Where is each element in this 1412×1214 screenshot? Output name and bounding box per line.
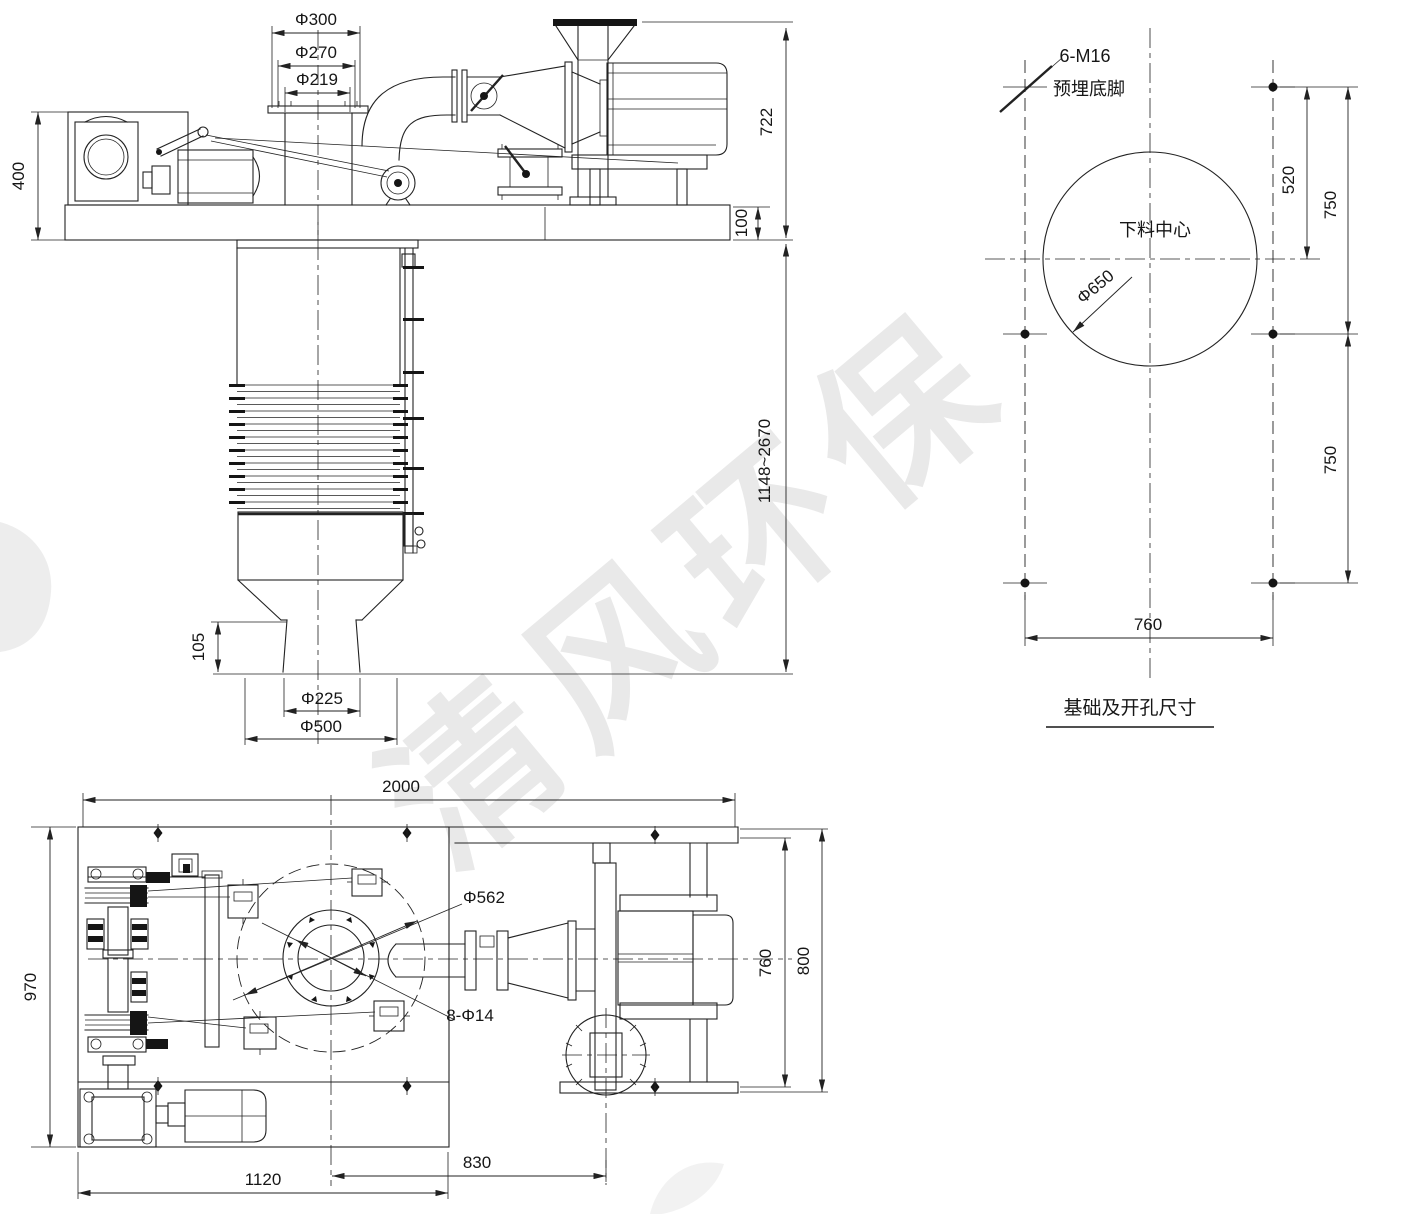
dim-bolt-span: 760 <box>1134 615 1162 634</box>
dim-overall-width: 2000 <box>382 777 420 796</box>
dim-center-offset: 520 <box>1279 166 1298 194</box>
label-discharge-center: 下料中心 <box>1119 220 1191 240</box>
dim-inlet-od: Φ300 <box>295 10 337 29</box>
foundation-view: 6-M16 预埋底脚 下料中心 Φ650 520 750 750 760 基础及… <box>985 28 1358 727</box>
dim-body-height-range: 1148~2670 <box>755 419 774 503</box>
dim-fan-height: 722 <box>757 108 776 136</box>
dim-row-top: 750 <box>1321 191 1340 219</box>
dim-drive-height: 400 <box>9 162 28 190</box>
drawing-canvas: Φ300 Φ270 Φ219 400 <box>0 0 1412 1214</box>
dim-bolt-holes: 8-Φ14 <box>446 1006 494 1025</box>
label-anchor-spec: 6-M16 <box>1059 46 1110 66</box>
dim-fan-frame-overall: 800 <box>794 947 813 975</box>
front-view: Φ300 Φ270 Φ219 400 <box>9 10 793 745</box>
dim-inlet-id: Φ219 <box>296 70 338 89</box>
sweep-trolleys <box>228 869 410 1055</box>
label-anchor: 预埋底脚 <box>1053 79 1125 99</box>
watermark-leaf-shapes <box>0 522 724 1214</box>
dim-spout-height: 105 <box>189 633 208 661</box>
drawing-page: 清风环保 Φ300 Φ270 Φ219 400 <box>0 0 1412 1214</box>
dim-inlet-mid: Φ270 <box>295 43 337 62</box>
dim-frame-width: 1120 <box>245 1170 282 1189</box>
dim-outlet-dia: Φ225 <box>301 689 343 708</box>
dim-fan-frame-depth: 760 <box>756 949 775 977</box>
foundation-caption: 基础及开孔尺寸 <box>1063 697 1196 719</box>
dim-cone-dia: Φ500 <box>300 717 342 736</box>
dim-fan-offset: 830 <box>463 1153 491 1172</box>
dim-row-bottom: 750 <box>1321 446 1340 474</box>
dim-base-height: 100 <box>732 209 751 237</box>
anchor-diamonds <box>154 824 660 1096</box>
bellows <box>229 384 408 509</box>
label-opening-dia: Φ650 <box>1073 266 1117 308</box>
plan-view: Φ562 8-Φ14 2000 970 1120 <box>21 777 828 1199</box>
dim-sweep-dia: Φ562 <box>463 888 505 907</box>
dim-frame-depth: 970 <box>21 973 40 1001</box>
